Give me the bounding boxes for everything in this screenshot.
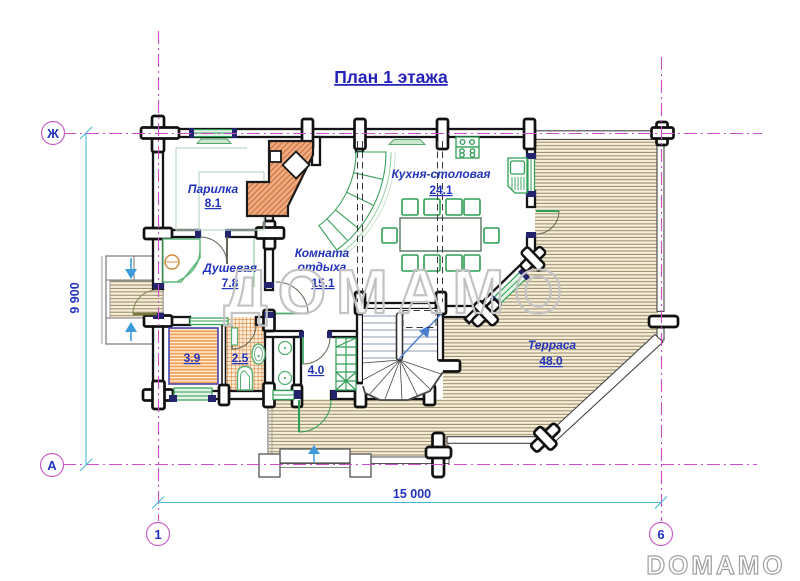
svg-text:48.0: 48.0	[539, 354, 563, 368]
svg-text:15 000: 15 000	[393, 487, 431, 501]
svg-text:4.0: 4.0	[308, 363, 325, 377]
svg-text:1: 1	[154, 527, 161, 542]
svg-text:3.9: 3.9	[184, 351, 201, 365]
svg-text:А: А	[47, 458, 57, 473]
svg-text:2.5: 2.5	[232, 351, 249, 365]
svg-text:24.1: 24.1	[429, 183, 453, 197]
svg-text:План 1 этажа: План 1 этажа	[334, 67, 448, 87]
svg-text:Терраса: Терраса	[528, 338, 577, 352]
svg-text:Ж: Ж	[46, 126, 59, 141]
svg-text:6: 6	[657, 527, 664, 542]
svg-text:DOMAMO: DOMAMO	[646, 550, 785, 580]
svg-text:Кухня-столовая: Кухня-столовая	[391, 167, 490, 181]
svg-text:9 900: 9 900	[68, 282, 82, 313]
svg-text:Парилка: Парилка	[188, 182, 239, 196]
svg-text:ДОМАМО: ДОМАМО	[224, 258, 573, 327]
svg-text:8.1: 8.1	[205, 196, 222, 210]
